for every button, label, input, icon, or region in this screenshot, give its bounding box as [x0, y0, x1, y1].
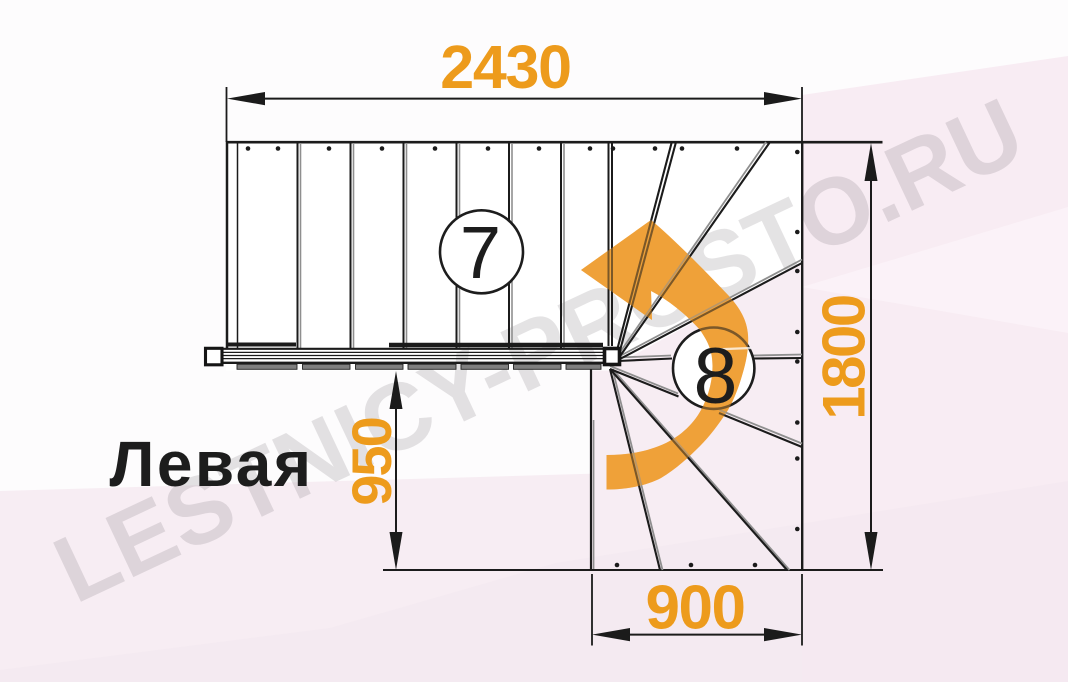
- svg-text:Левая: Левая: [110, 428, 314, 500]
- svg-text:950: 950: [340, 418, 403, 505]
- svg-text:8: 8: [694, 331, 738, 420]
- svg-text:7: 7: [460, 211, 501, 294]
- svg-text:2430: 2430: [440, 33, 571, 101]
- svg-text:900: 900: [646, 574, 745, 643]
- svg-text:1800: 1800: [811, 296, 878, 420]
